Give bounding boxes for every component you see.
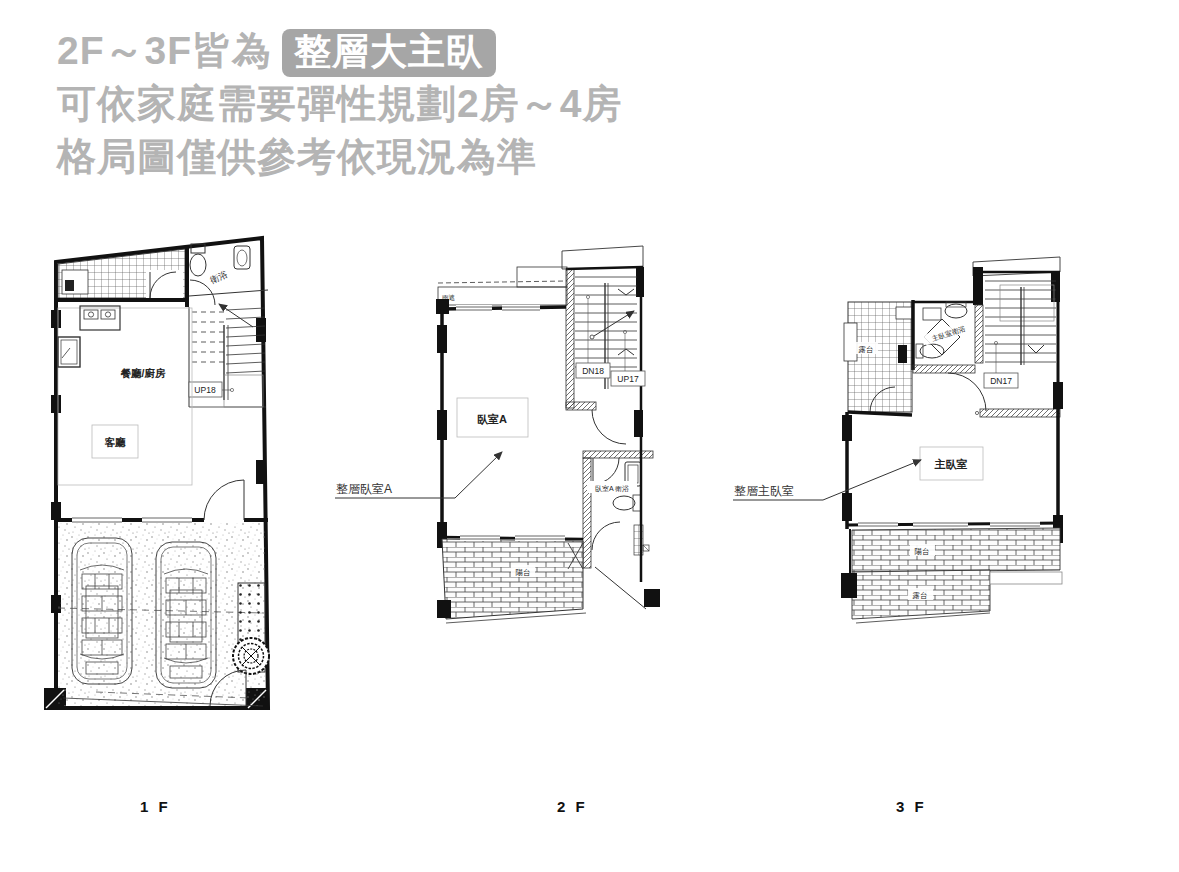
stair-block-3f	[973, 257, 1060, 417]
top-wall-2f	[436, 299, 566, 314]
floor-plan-1f: 衛浴 UP18	[38, 230, 273, 770]
garage-1f	[58, 523, 269, 706]
svg-text:臥室A 衛浴: 臥室A 衛浴	[595, 485, 629, 493]
annotation-2f: 整層臥室A	[335, 452, 502, 498]
stair-block-2f	[562, 246, 644, 444]
headline: 2F～3F皆為整層大主臥 可依家庭需要彈性規劃2房～4房 格局圖僅供參考依現況為…	[57, 24, 622, 183]
living-label: 客廳	[104, 436, 127, 448]
balcony-2f: 陽台	[437, 534, 586, 623]
dining-kitchen-label: 餐廳/廚房	[121, 367, 166, 379]
headline-badge: 整層大主臥	[282, 29, 496, 77]
terrace-top-label: 露台	[859, 345, 874, 354]
svg-text:DN17: DN17	[990, 376, 1012, 386]
terraces-bottom-3f: 陽台 露台	[841, 528, 1062, 623]
floorplan-sheet: 2F～3F皆為整層大主臥 可依家庭需要彈性規劃2房～4房 格局圖僅供參考依現況為…	[0, 0, 1179, 872]
stair-labels-2f: DN18 UP17	[576, 295, 645, 386]
bathroom-2f	[583, 408, 653, 582]
balcony-3f-label: 陽台	[915, 547, 930, 556]
stair-label-1f: UP18	[189, 382, 234, 397]
svg-text:UP18: UP18	[194, 385, 216, 395]
svg-text:UP17: UP17	[617, 374, 639, 384]
headline-line1: 2F～3F皆為整層大主臥	[57, 24, 622, 77]
svg-text:整層主臥室: 整層主臥室	[734, 484, 794, 498]
balcony-2f-label: 陽台	[516, 568, 531, 577]
headline-line1-text: 2F～3F皆為	[57, 29, 272, 72]
terrace-top-3f: 露台	[844, 302, 912, 415]
floor-plan-3f: DN17 露台 主臥室衛浴	[728, 245, 1073, 625]
master-label: 主臥室	[935, 458, 968, 471]
caption-1f: 1 F	[140, 798, 171, 815]
canopy-2f	[438, 267, 567, 305]
bathroom-1f-label: 衛浴	[209, 269, 230, 285]
corner-2f	[595, 567, 660, 609]
terrace-bottom-label: 露台	[913, 591, 928, 600]
separator-wall-1f	[56, 480, 268, 524]
bathroom-3f-label: 主臥室衛浴	[923, 320, 974, 346]
svg-text:整層臥室A: 整層臥室A	[336, 482, 392, 496]
caption-3f: 3 F	[896, 798, 927, 815]
caption-2f: 2 F	[557, 798, 588, 815]
headline-line2: 可依家庭需要彈性規劃2房～4房	[57, 77, 622, 130]
annotation-3f: 整層主臥室	[733, 460, 921, 500]
plant-icon	[233, 638, 269, 674]
stair-label-3f: DN17	[984, 341, 1018, 388]
left-wall-2f	[437, 309, 447, 548]
floor-plan-2f: DN18 UP17 雨遮	[330, 237, 675, 637]
bathroom-1f	[189, 244, 268, 305]
headline-line3: 格局圖僅供參考依現況為準	[57, 130, 622, 183]
bathroom-2f-label: 臥室A 衛浴	[587, 481, 637, 493]
svg-text:DN18: DN18	[582, 366, 604, 376]
bedroom-a-label: 臥室A	[477, 413, 507, 426]
